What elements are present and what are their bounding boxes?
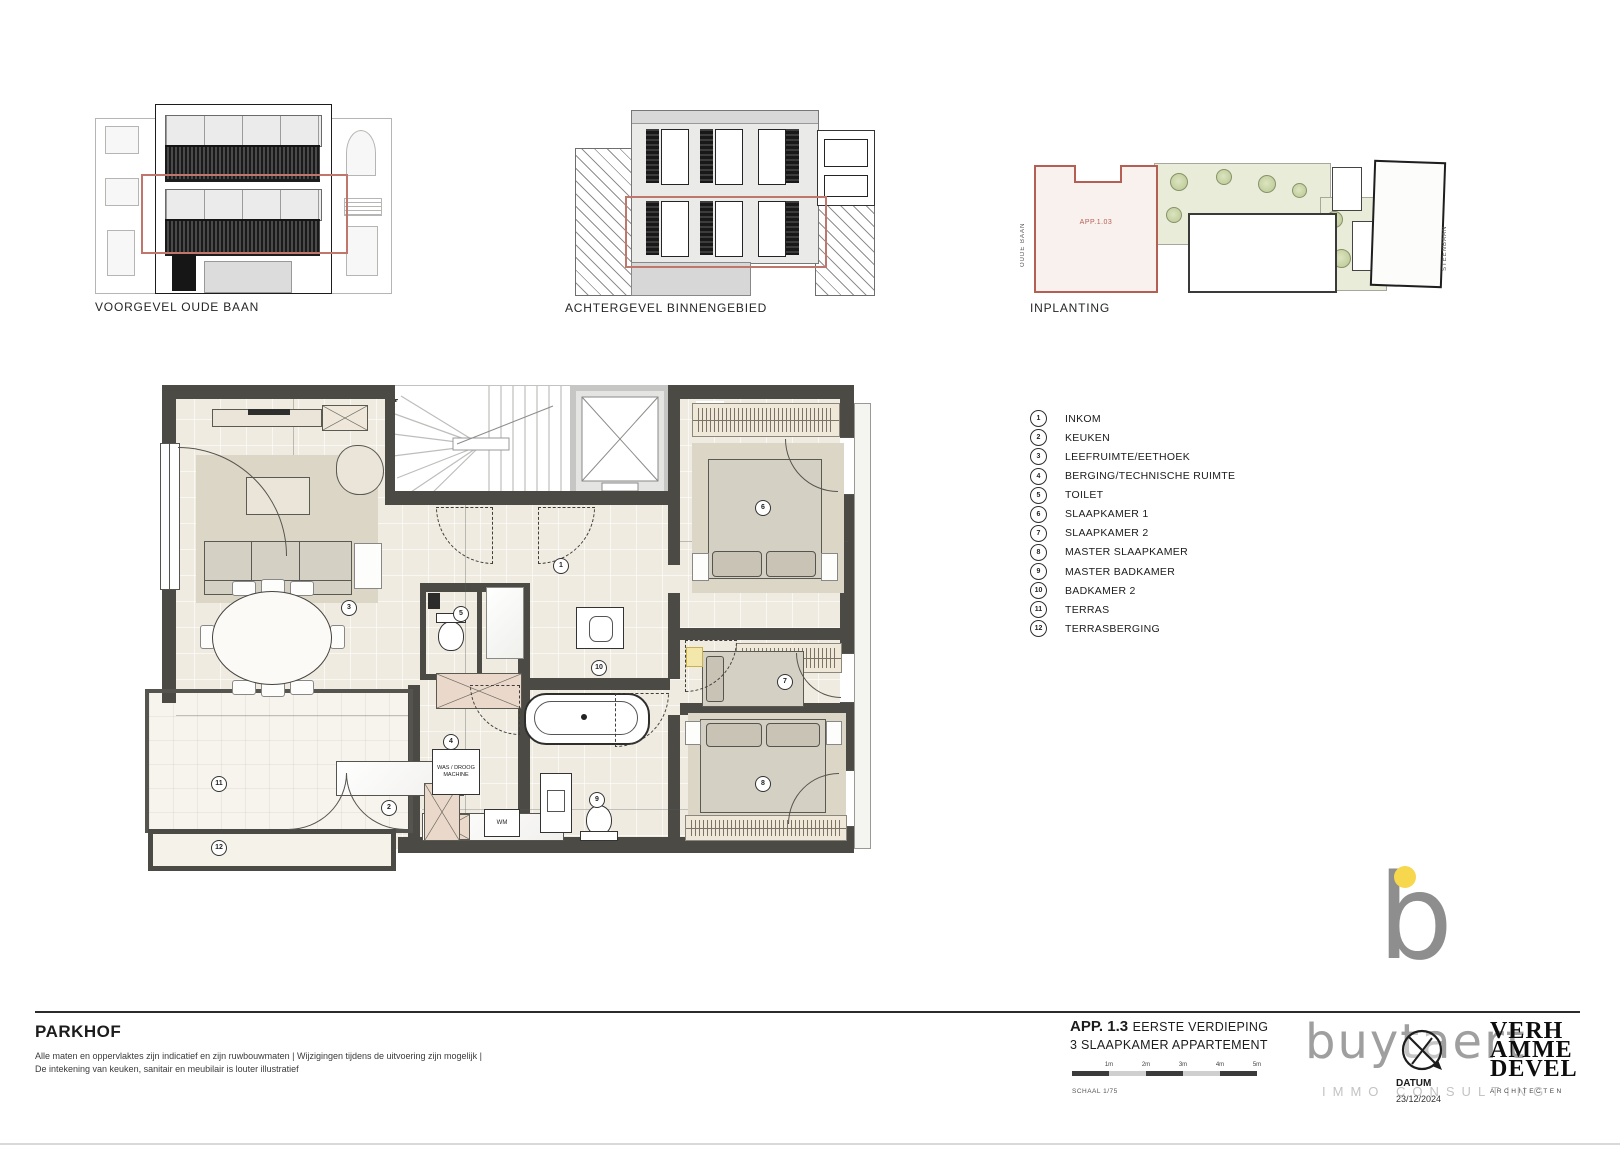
room-marker-terrasberging: 12: [211, 840, 227, 856]
legend-number: 1: [1030, 410, 1047, 427]
wall: [668, 503, 680, 565]
window-pane: [715, 129, 743, 185]
scale-tick: 2m: [1142, 1062, 1150, 1068]
dining-chair: [330, 625, 345, 649]
project-title: PARKHOF: [35, 1022, 121, 1042]
disclaimer-line-1: Alle maten en oppervlaktes zijn indicati…: [35, 1050, 655, 1063]
legend-number: 4: [1030, 468, 1047, 485]
legend-item: 10BADKAMER 2: [1030, 584, 1235, 598]
nightstand: [826, 721, 842, 745]
terrace-storage: [148, 829, 396, 871]
toilet-icon: [438, 621, 464, 651]
dining-table: [212, 591, 332, 685]
pillow: [766, 551, 816, 577]
legend-label: TERRASBERGING: [1065, 623, 1160, 635]
tree-icon: [1258, 175, 1276, 193]
street-label-right: STEENBAAN: [1442, 201, 1448, 271]
legend-label: SLAAPKAMER 1: [1065, 508, 1149, 520]
datum-label: DATUM: [1396, 1078, 1431, 1089]
neighbor-garage: [346, 226, 378, 276]
room-marker-master-slaapkamer: 8: [755, 776, 771, 792]
window-pane: [824, 175, 868, 197]
glazing-floor-2: [165, 115, 322, 147]
tree-icon: [1166, 207, 1182, 223]
entrance-door: [172, 253, 196, 291]
balcony-strip: [854, 403, 871, 849]
legend-number: 6: [1030, 506, 1047, 523]
wall: [668, 593, 680, 679]
legend-label: BERGING/TECHNISCHE RUIMTE: [1065, 470, 1235, 482]
wall: [162, 385, 395, 399]
legend-number: 3: [1030, 448, 1047, 465]
scale-tick: 5m: [1253, 1062, 1261, 1068]
pillow: [712, 551, 762, 577]
apartment-type: 3 SLAAPKAMER APPARTEMENT: [1070, 1038, 1268, 1052]
room-marker-berging: 4: [443, 734, 459, 750]
room-marker-master-badkamer: 9: [589, 792, 605, 808]
room-marker-slaapkamer1: 6: [755, 500, 771, 516]
legend-number: 11: [1030, 601, 1047, 618]
scale-label: SCHAAL 1/75: [1072, 1088, 1118, 1095]
nightstand: [821, 553, 838, 581]
window-pane: [758, 129, 786, 185]
architect-logo: VERH AMME DEVEL: [1490, 1022, 1578, 1079]
legend-number: 8: [1030, 544, 1047, 561]
rear-elevation-label: ACHTERGEVEL BINNENGEBIED: [565, 301, 767, 315]
siteplan-label: INPLANTING: [1030, 301, 1110, 315]
room-marker-leefruimte: 3: [341, 600, 357, 616]
datum-value: 23/12/2024: [1396, 1094, 1441, 1104]
floor-plan: WAS / DROOG MACHINE WM: [140, 385, 870, 875]
nightstand: [692, 553, 709, 581]
washbasin-cabinet: [576, 607, 624, 649]
neighbor-window: [105, 126, 139, 154]
boiler: WM: [484, 809, 520, 837]
wardrobe: [692, 403, 840, 437]
scale-tick: 3m: [1179, 1062, 1187, 1068]
architect-logo-line: DEVEL: [1490, 1060, 1578, 1079]
wall: [668, 385, 680, 505]
apartment-code: APP. 1.3: [1070, 1018, 1128, 1035]
floor-label: EERSTE VERDIEPING: [1133, 1020, 1269, 1034]
legend-number: 5: [1030, 487, 1047, 504]
room-marker-inkom: 1: [553, 558, 569, 574]
legend-number: 10: [1030, 582, 1047, 599]
legend-label: INKOM: [1065, 413, 1101, 425]
room-marker-keuken: 2: [381, 800, 397, 816]
wall: [392, 491, 680, 505]
washbasin-icon: [547, 790, 565, 812]
footprint-notch: [1074, 165, 1122, 183]
legend-label: TOILET: [1065, 489, 1103, 501]
dining-chair: [290, 680, 314, 695]
street-label-left: OUDE BAAN: [1020, 197, 1026, 267]
apartment-title: APP. 1.3 EERSTE VERDIEPING: [1070, 1018, 1268, 1036]
page-bottom-edge: [0, 1143, 1620, 1145]
highlight-floor-outline: [141, 174, 348, 254]
neighbor-building-right-rear: [817, 130, 875, 206]
legend-item: 3LEEFRUIMTE/EETHOEK: [1030, 450, 1235, 464]
architect-subtitle: ARCHITECTEN: [1490, 1088, 1564, 1095]
scale-tick: 1m: [1105, 1062, 1113, 1068]
legend-label: KEUKEN: [1065, 432, 1110, 444]
title-divider-line: [35, 1011, 1580, 1013]
legend-item: 7SLAAPKAMER 2: [1030, 527, 1235, 541]
legend-item: 2KEUKEN: [1030, 431, 1235, 445]
highlight-floor-outline: [625, 196, 827, 268]
wall: [668, 715, 680, 841]
toilet-cistern: [580, 831, 618, 841]
wall: [385, 385, 395, 505]
wall: [420, 583, 426, 680]
neighbor-door: [107, 230, 135, 276]
door-opening: [840, 653, 854, 703]
legend-label: BADKAMER 2: [1065, 585, 1136, 597]
rear-elevation-drawing: [565, 108, 880, 295]
garage-front: [204, 261, 292, 293]
washbasin-icon: [428, 593, 440, 609]
legend-item: 5TOILET: [1030, 488, 1235, 502]
tree-icon: [1170, 173, 1188, 191]
window-mullion: [169, 444, 170, 589]
neighbor-window: [105, 178, 139, 206]
legend-number: 9: [1030, 563, 1047, 580]
window-panel: [646, 129, 659, 183]
washbasin-cabinet: [540, 773, 572, 833]
side-table: [354, 543, 382, 589]
shower: [486, 587, 524, 659]
legend-item: 11TERRAS: [1030, 603, 1235, 617]
wall: [675, 385, 854, 399]
legend-item: 1INKOM: [1030, 412, 1235, 426]
scale-bar: 1m 2m 3m 4m 5m: [1072, 1062, 1257, 1080]
tree-icon: [1292, 183, 1307, 198]
cabinet: [322, 405, 368, 431]
buytaert-logo-dot: [1394, 866, 1416, 888]
window-panel: [786, 129, 799, 183]
neighbor-railing: [344, 198, 382, 216]
rear-building: [1370, 160, 1446, 288]
dimension-line: [176, 715, 408, 716]
legend-number: 7: [1030, 525, 1047, 542]
elevator-shaft: [570, 385, 670, 503]
disclaimer-line-2: De intekening van keuken, sanitair en me…: [35, 1063, 655, 1076]
bathtub-drain: [581, 714, 587, 720]
legend-item: 4BERGING/TECHNISCHE RUIMTE: [1030, 469, 1235, 483]
window: [160, 443, 180, 590]
courtyard-building: [1188, 213, 1337, 293]
plan-sheet: VOORGEVEL OUDE BAAN ACHTERGEVEL BINNEN: [0, 0, 1620, 1151]
scale-bar-segments: [1072, 1071, 1257, 1076]
front-elevation-drawing: [95, 98, 390, 292]
legend-item: 6SLAAPKAMER 1: [1030, 507, 1235, 521]
room-marker-toilet: 5: [453, 606, 469, 622]
wall: [680, 628, 854, 640]
pillow: [766, 723, 820, 747]
legend-label: MASTER BADKAMER: [1065, 566, 1175, 578]
legend-label: MASTER SLAAPKAMER: [1065, 546, 1188, 558]
tree-icon: [1216, 169, 1232, 185]
window-pane: [661, 129, 689, 185]
legend-item: 12TERRASBERGING: [1030, 622, 1235, 636]
site-structure: [1332, 167, 1362, 211]
unit-label: APP.1.03: [1036, 219, 1156, 226]
tv: [248, 409, 290, 415]
legend-item: 9MASTER BADKAMER: [1030, 565, 1235, 579]
pillow: [706, 723, 762, 747]
site-plan-drawing: OUDE BAAN APP.1.03 STEENBAAN: [1020, 155, 1450, 290]
room-marker-slaapkamer2: 7: [777, 674, 793, 690]
wall: [477, 592, 482, 674]
apartment-footprint: APP.1.03: [1034, 165, 1158, 293]
wall: [518, 678, 670, 690]
legend-label: LEEFRUIMTE/EETHOEK: [1065, 451, 1190, 463]
neighbor-arch-window: [346, 130, 376, 176]
roof-band: [632, 111, 818, 124]
legend-label: SLAAPKAMER 2: [1065, 527, 1149, 539]
legend-item: 8MASTER SLAAPKAMER: [1030, 546, 1235, 560]
room-marker-terras: 11: [211, 776, 227, 792]
front-elevation-label: VOORGEVEL OUDE BAAN: [95, 300, 259, 314]
window-panel: [700, 129, 713, 183]
window-pane: [824, 139, 868, 167]
legend-number: 12: [1030, 620, 1047, 637]
scale-tick: 4m: [1216, 1062, 1224, 1068]
room-legend: 1INKOM 2KEUKEN 3LEEFRUIMTE/EETHOEK 4BERG…: [1030, 412, 1235, 636]
nightstand: [685, 721, 701, 745]
room-marker-badkamer2: 10: [591, 660, 607, 676]
disclaimer: Alle maten en oppervlaktes zijn indicati…: [35, 1050, 655, 1076]
washbasin-icon: [589, 616, 613, 642]
armchair: [336, 445, 384, 495]
compass-icon: [1398, 1026, 1450, 1083]
legend-label: TERRAS: [1065, 604, 1109, 616]
washer-dryer: WAS / DROOG MACHINE: [432, 749, 480, 795]
staircase: [392, 385, 572, 505]
legend-number: 2: [1030, 429, 1047, 446]
